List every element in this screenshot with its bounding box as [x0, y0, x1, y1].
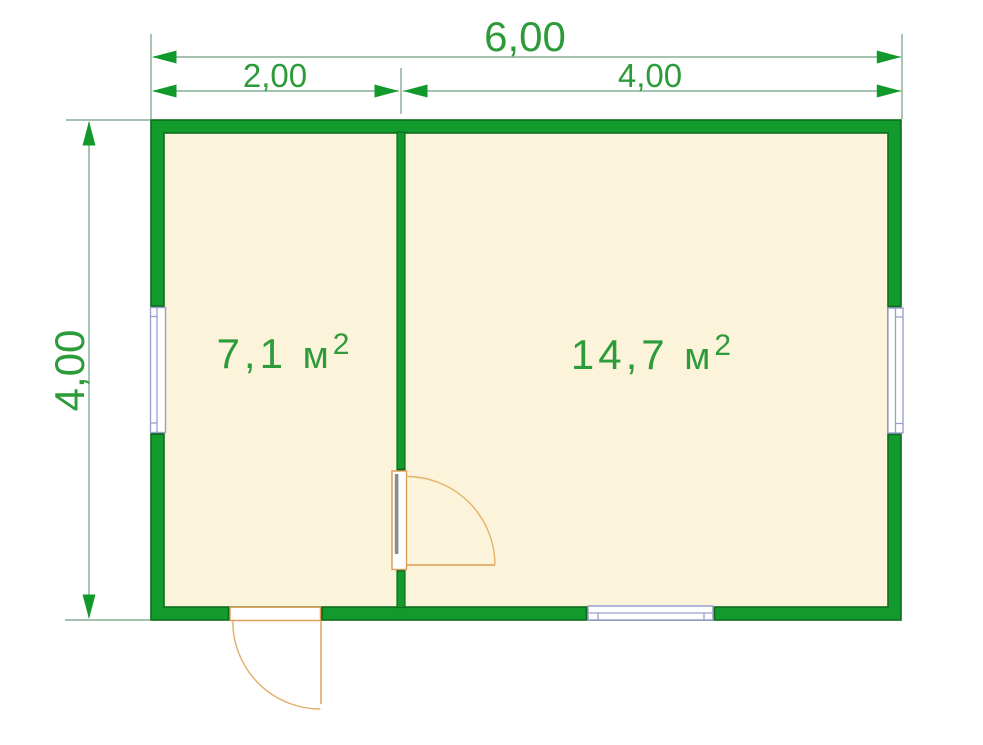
- svg-text:6,00: 6,00: [484, 13, 566, 60]
- svg-text:4,00: 4,00: [618, 57, 682, 94]
- svg-text:4,00: 4,00: [46, 330, 93, 412]
- svg-text:2,00: 2,00: [243, 57, 307, 94]
- svg-text:14,7 м2: 14,7 м2: [571, 329, 735, 378]
